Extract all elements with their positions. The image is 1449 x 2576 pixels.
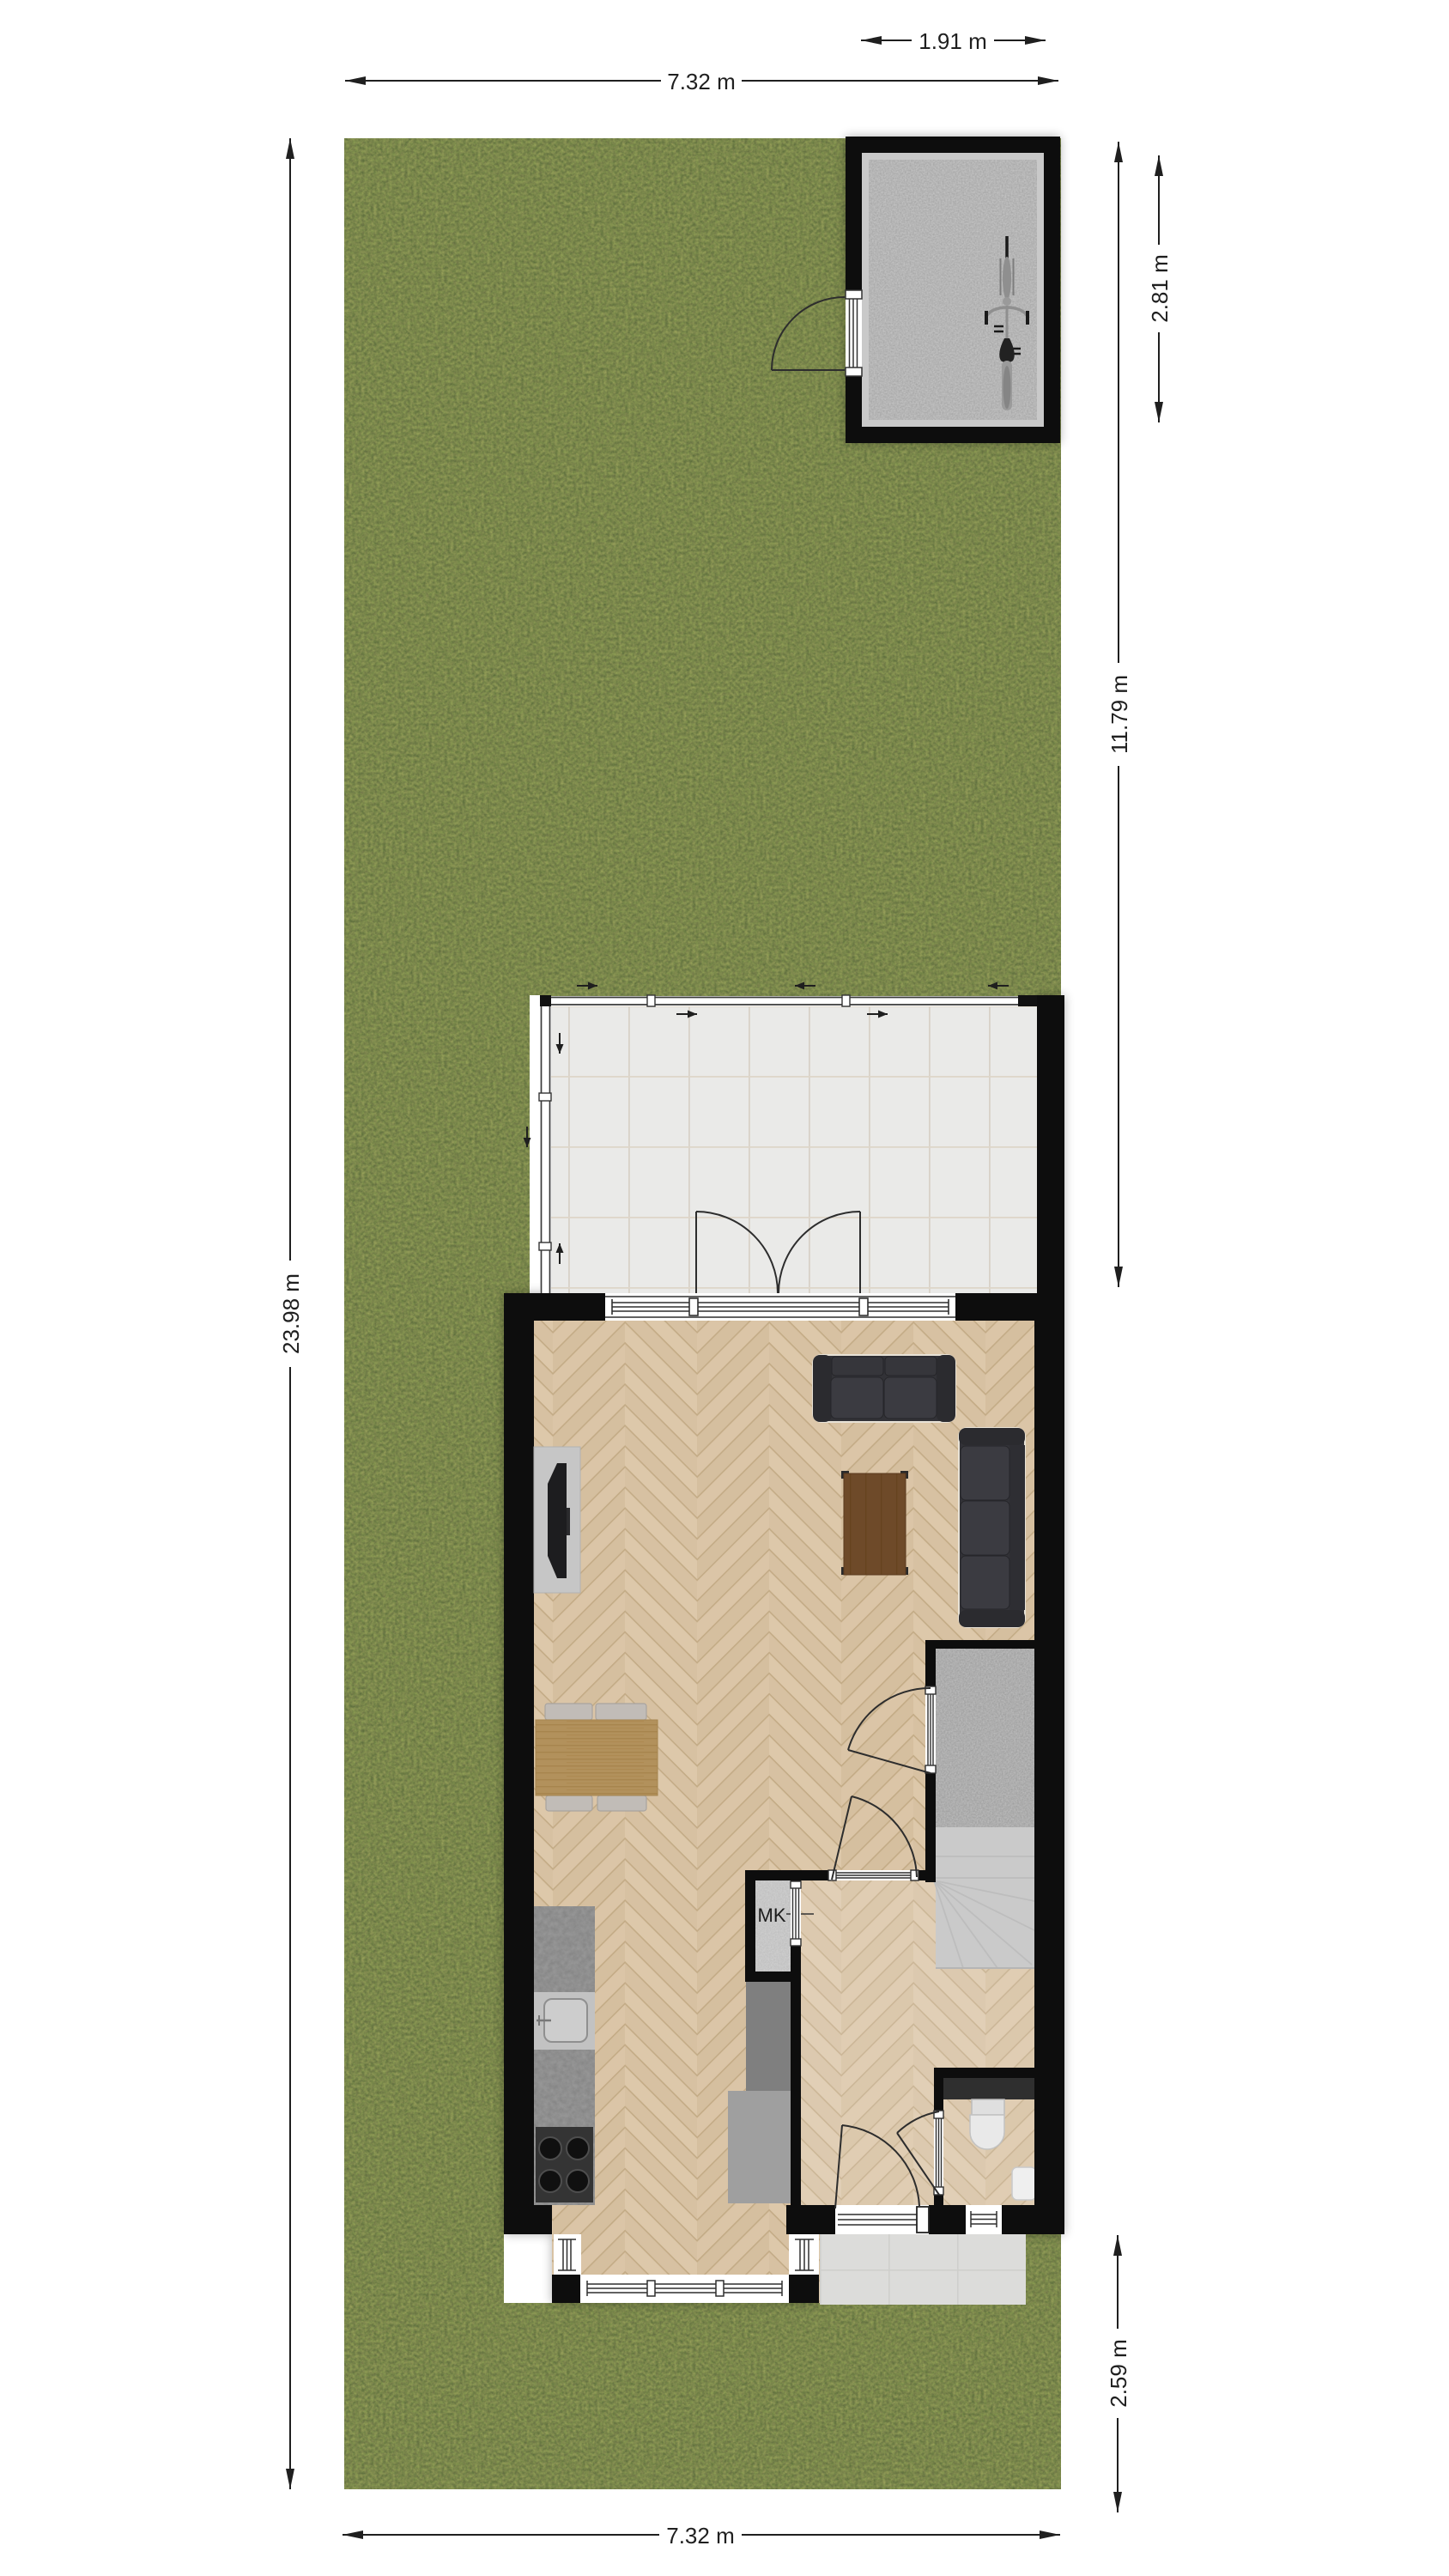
svg-text:11.79 m: 11.79 m xyxy=(1106,675,1132,754)
svg-text:2.81 m: 2.81 m xyxy=(1147,254,1173,323)
svg-text:2.59 m: 2.59 m xyxy=(1106,2339,1131,2408)
svg-text:1.91 m: 1.91 m xyxy=(919,28,987,54)
svg-text:23.98 m: 23.98 m xyxy=(278,1273,304,1354)
svg-text:7.32 m: 7.32 m xyxy=(667,69,736,94)
svg-text:7.32 m: 7.32 m xyxy=(666,2523,735,2549)
svg-text:MK: MK xyxy=(758,1905,786,1926)
